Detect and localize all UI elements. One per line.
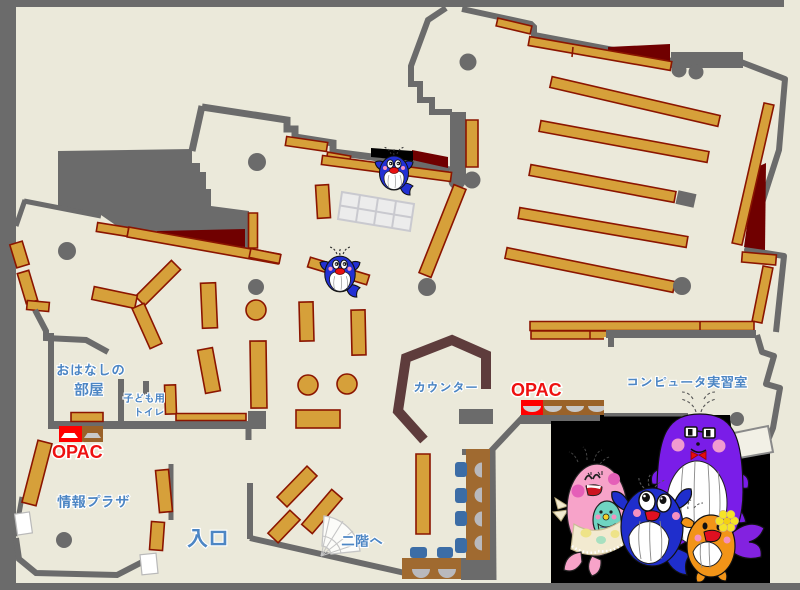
svg-text:OPAC: OPAC bbox=[511, 380, 562, 400]
svg-text:OPAC: OPAC bbox=[52, 442, 103, 462]
